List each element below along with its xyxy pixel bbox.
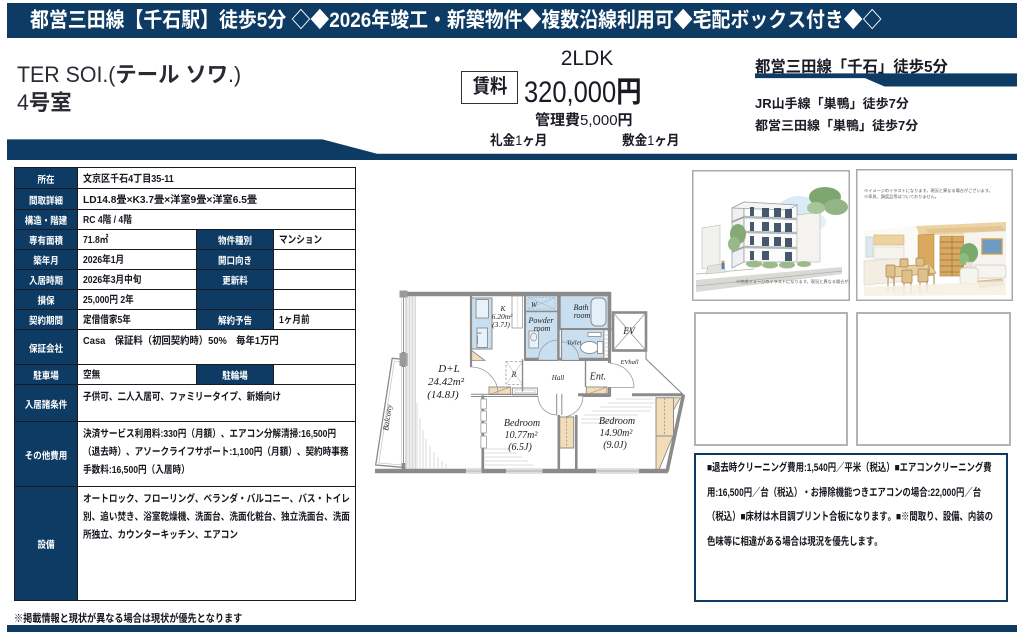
svg-text:Toilet: Toilet (567, 340, 582, 347)
svg-text:※イメージのイラストになります。現況と異なる場合がございます: ※イメージのイラストになります。現況と異なる場合がございます。 (864, 187, 993, 194)
svg-text:W: W (531, 300, 538, 309)
svg-text:D+L: D+L (437, 363, 459, 375)
svg-text:Bedroom: Bedroom (599, 416, 635, 427)
svg-text:room: room (534, 324, 551, 333)
svg-text:Hall: Hall (551, 374, 565, 382)
svg-text:(6.5J): (6.5J) (508, 442, 532, 453)
svg-text:(9.0J): (9.0J) (603, 440, 627, 451)
svg-text:24.42m²: 24.42m² (428, 376, 465, 388)
svg-text:(14.8J): (14.8J) (427, 389, 459, 401)
svg-text:10.77m²: 10.77m² (505, 430, 539, 441)
svg-text:14.90m²: 14.90m² (600, 428, 634, 439)
svg-text:※完成イメージのイラストになります。現況と異なる場合がござい: ※完成イメージのイラストになります。現況と異なる場合がございます。 (736, 278, 850, 285)
svg-text:EV: EV (622, 327, 636, 337)
svg-text:※家具、調度品等はついておりません。: ※家具、調度品等はついておりません。 (864, 193, 939, 200)
svg-text:Bedroom: Bedroom (504, 418, 540, 429)
svg-text:EVhall: EVhall (619, 359, 638, 366)
svg-text:R: R (511, 370, 517, 379)
svg-text:Ent.: Ent. (589, 372, 606, 383)
svg-text:(3.7J): (3.7J) (492, 320, 510, 329)
svg-text:room: room (574, 311, 591, 320)
